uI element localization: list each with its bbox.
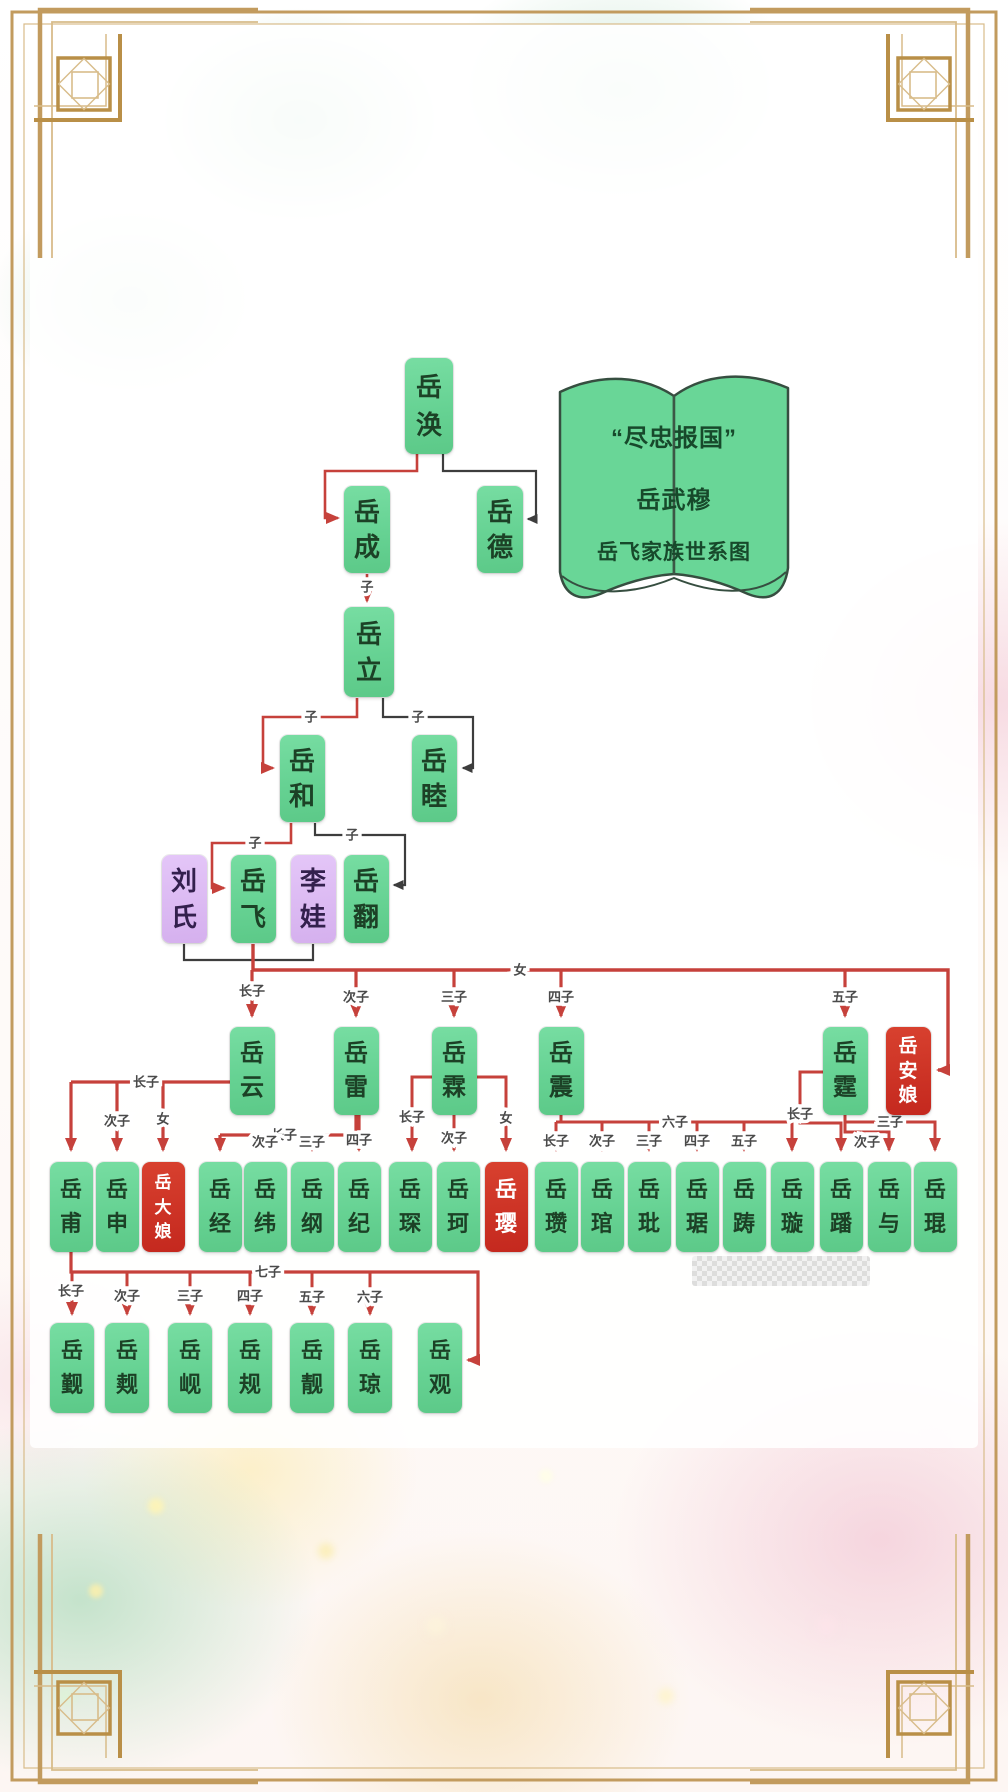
relation-label: 女 [513, 963, 526, 978]
connector-line [263, 698, 357, 768]
relation-label: 长子 [543, 1134, 569, 1149]
relation-label: 长子 [133, 1075, 159, 1090]
relation-label: 长子 [787, 1107, 813, 1122]
relation-label: 五子 [299, 1290, 325, 1305]
relation-label: 四子 [346, 1133, 372, 1148]
relation-label: 次子 [441, 1131, 467, 1146]
relation-label: 女 [499, 1111, 512, 1126]
relation-label: 次子 [114, 1289, 140, 1304]
relation-label: 子 [360, 580, 373, 595]
relation-label: 七子 [255, 1265, 281, 1280]
relation-label: 次子 [854, 1135, 880, 1150]
relation-label: 次子 [589, 1134, 615, 1149]
screenshot-stage: “尽忠报国” 岳武穆 岳飞家族世系图 子子子子子女长子次子三子四子五子长子次子女… [0, 0, 1008, 1792]
connector-line [315, 823, 405, 885]
relation-label: 三子 [441, 990, 467, 1005]
blurred-watermark [692, 1256, 870, 1286]
relation-label: 次子 [104, 1114, 130, 1129]
relation-label: 子 [411, 710, 424, 725]
relation-label: 三子 [636, 1134, 662, 1149]
relation-label: 长子 [239, 984, 265, 999]
connector-line [325, 454, 417, 518]
relation-label: 长子 [58, 1284, 84, 1299]
relation-label: 次子 [343, 990, 369, 1005]
relation-label: 长子 [399, 1110, 425, 1125]
connector-line [383, 698, 473, 768]
connector-line [212, 823, 291, 888]
relation-label: 五子 [731, 1134, 757, 1149]
connector-line [184, 944, 313, 960]
relation-label: 次子 [252, 1135, 278, 1150]
relation-label: 子 [304, 710, 317, 725]
relation-label: 六子 [662, 1115, 688, 1130]
relation-label: 子 [345, 828, 358, 843]
relation-label: 三子 [177, 1289, 203, 1304]
relation-label: 六子 [357, 1290, 383, 1305]
relation-label: 三子 [299, 1135, 325, 1150]
relation-label: 四子 [684, 1134, 710, 1149]
relation-label: 子 [248, 836, 261, 851]
relation-label: 三子 [877, 1115, 903, 1130]
relation-label: 四子 [548, 990, 574, 1005]
relation-label: 女 [156, 1112, 169, 1127]
connector-line [443, 454, 536, 519]
relation-label: 四子 [237, 1289, 263, 1304]
relation-label: 五子 [832, 990, 858, 1005]
family-tree-connectors: 子子子子子女长子次子三子四子五子长子次子女长子次子三子四子长子次子女六子长子次子… [0, 0, 1008, 1792]
